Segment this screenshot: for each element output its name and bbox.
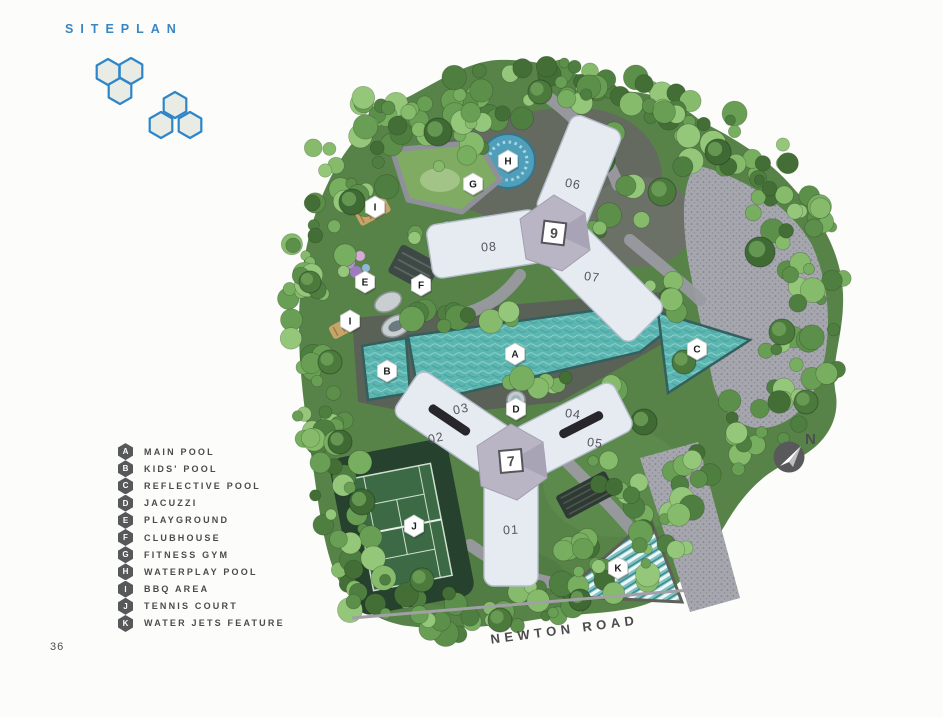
svg-text:B: B: [383, 367, 390, 378]
svg-text:G: G: [469, 180, 477, 191]
svg-text:F: F: [418, 281, 424, 292]
unit-label-01: 01: [503, 523, 520, 538]
unit-label-04: 04: [564, 406, 582, 422]
unit-label-05: 05: [586, 435, 604, 451]
siteplan-page: SITEPLAN AMAIN POOLBKIDS' POOLCREFLECTIV…: [0, 0, 943, 717]
svg-text:7: 7: [506, 453, 515, 470]
svg-text:I: I: [349, 317, 352, 328]
siteplan-illustration: 0608070302040501 97 ABCDEFGHIIJK N NEWTO…: [0, 0, 943, 717]
svg-text:J: J: [411, 522, 417, 533]
tower-badge-9: 9: [542, 221, 567, 246]
tower-badge-7: 7: [499, 449, 523, 473]
svg-text:D: D: [512, 405, 519, 416]
svg-text:E: E: [362, 278, 369, 289]
unit-label-06: 06: [564, 176, 582, 193]
svg-text:K: K: [614, 564, 622, 575]
svg-text:C: C: [693, 345, 700, 356]
compass-north-label: N: [805, 431, 816, 448]
svg-text:I: I: [374, 203, 377, 214]
unit-label-07: 07: [583, 269, 601, 285]
unit-label-08: 08: [481, 239, 498, 254]
svg-text:A: A: [511, 350, 518, 361]
svg-text:H: H: [504, 157, 511, 168]
